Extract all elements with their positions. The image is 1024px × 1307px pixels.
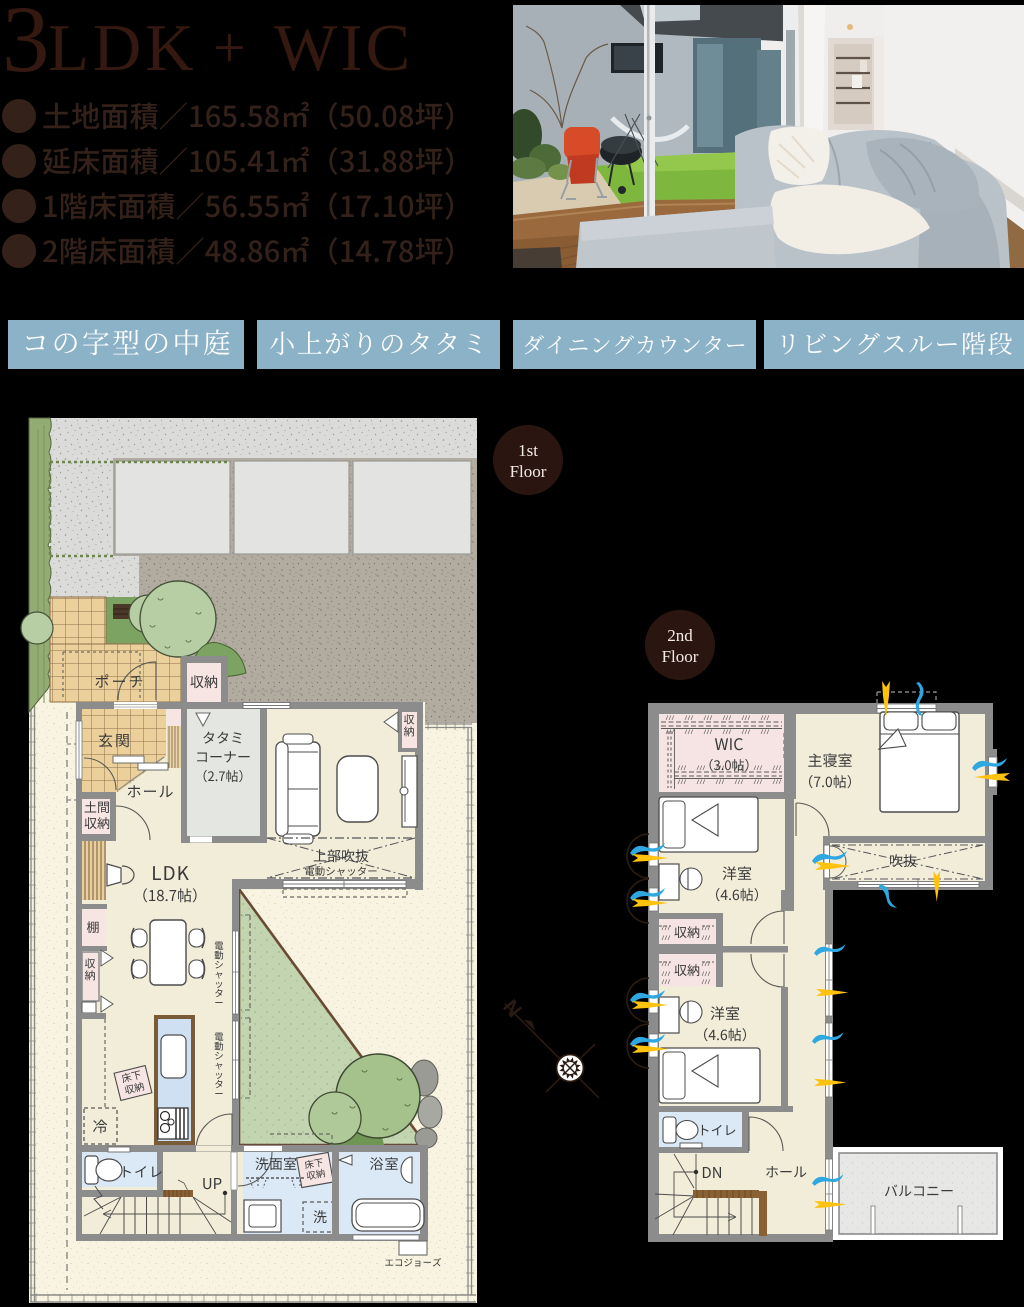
svg-text:+: + (213, 15, 246, 80)
svg-text:3: 3 (2, 0, 50, 92)
svg-text:Floor: Floor (510, 462, 547, 481)
svg-text:WIC: WIC (274, 11, 413, 85)
svg-text:2nd: 2nd (667, 626, 693, 645)
svg-text:1st: 1st (518, 441, 538, 460)
svg-text:LDK: LDK (48, 11, 198, 85)
svg-text:Floor: Floor (662, 647, 699, 666)
